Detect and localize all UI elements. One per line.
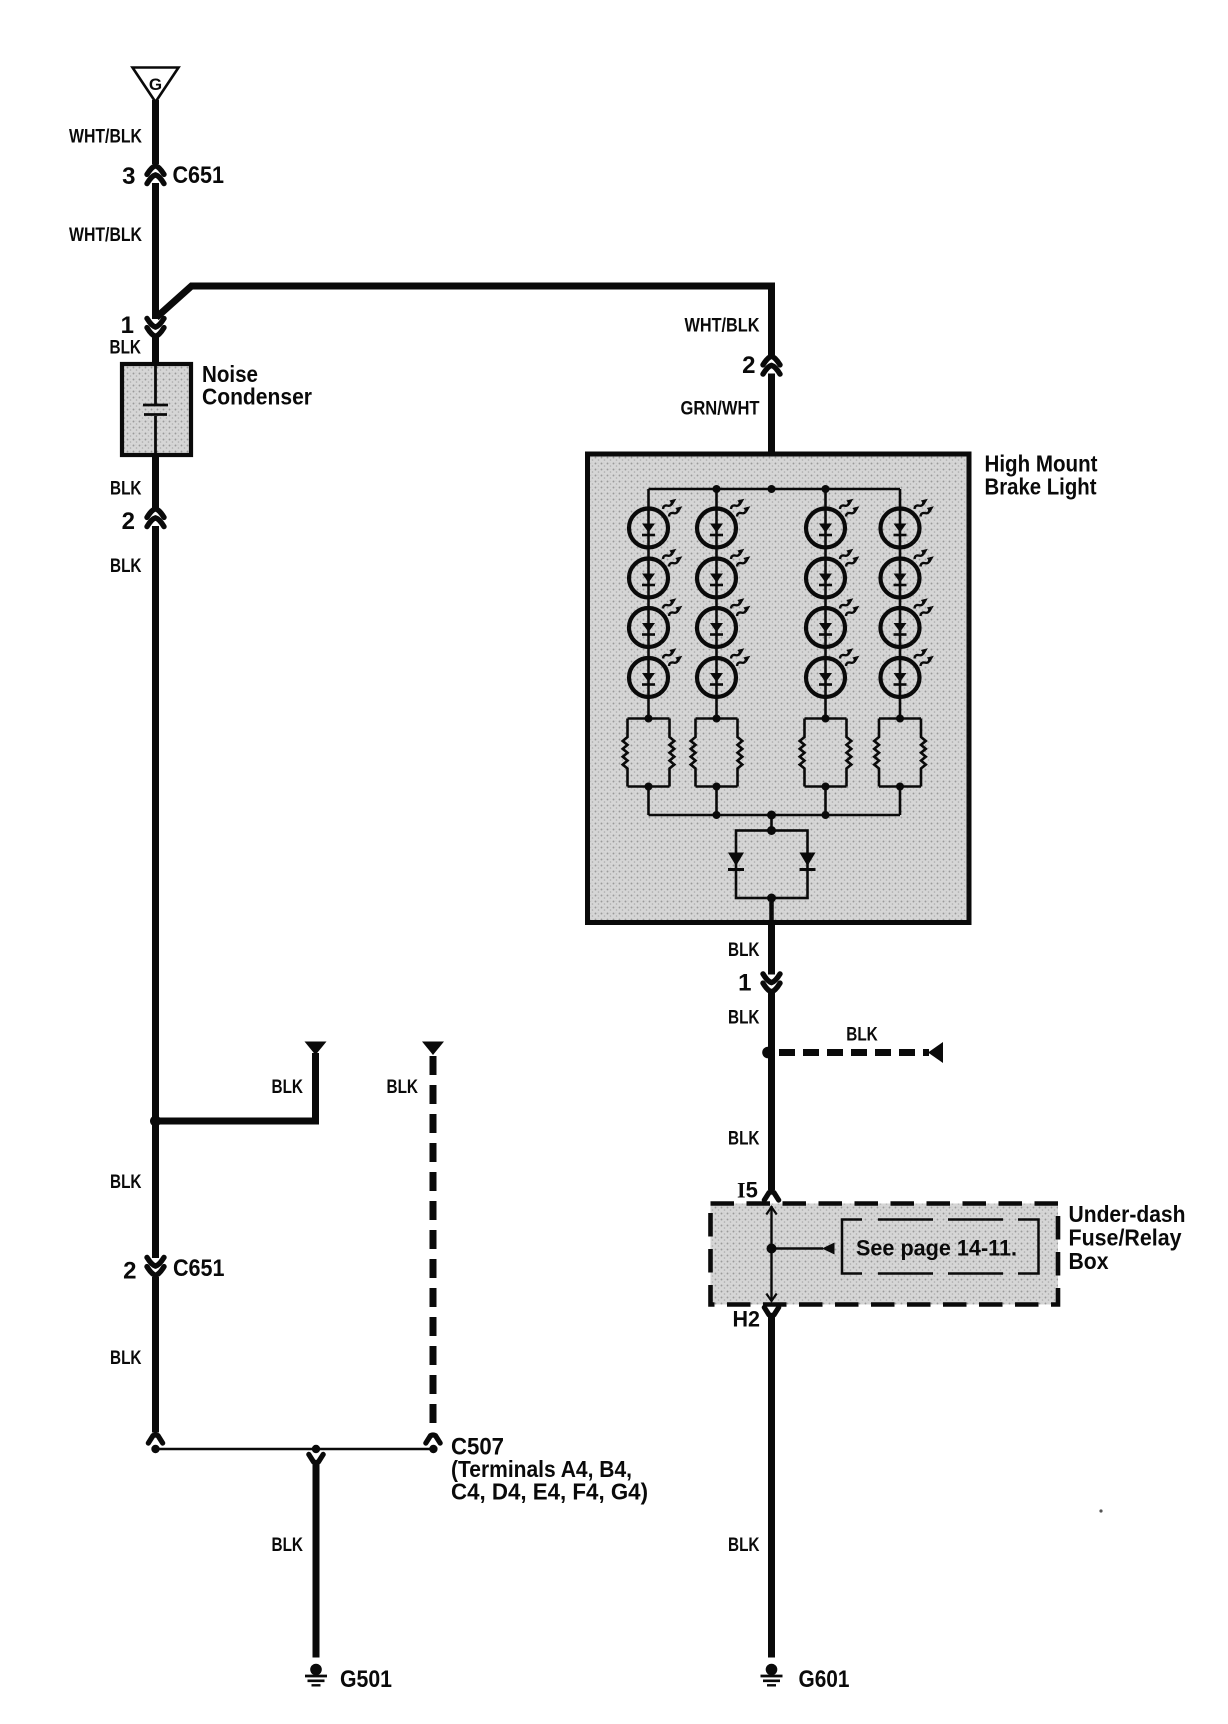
svg-text:1: 1 bbox=[121, 312, 134, 339]
svg-text:GRN/WHT: GRN/WHT bbox=[681, 399, 760, 420]
svg-text:G501: G501 bbox=[340, 1666, 392, 1693]
svg-text:BLK: BLK bbox=[272, 1535, 304, 1556]
svg-text:See page 14-11.: See page 14-11. bbox=[856, 1236, 1017, 1261]
svg-text:BLK: BLK bbox=[846, 1025, 878, 1046]
svg-text:Brake Light: Brake Light bbox=[985, 474, 1097, 500]
svg-text:BLK: BLK bbox=[728, 1008, 760, 1029]
svg-text:Fuse/Relay: Fuse/Relay bbox=[1069, 1225, 1182, 1251]
svg-text:BLK: BLK bbox=[728, 1535, 760, 1556]
svg-text:Box: Box bbox=[1069, 1248, 1109, 1274]
svg-text:BLK: BLK bbox=[110, 1172, 142, 1193]
svg-text:BLK: BLK bbox=[110, 479, 142, 500]
svg-text:BLK: BLK bbox=[387, 1077, 419, 1098]
svg-text:BLK: BLK bbox=[728, 940, 760, 961]
svg-text:Condenser: Condenser bbox=[202, 384, 312, 410]
svg-text:2: 2 bbox=[742, 352, 755, 379]
svg-text:BLK: BLK bbox=[110, 1348, 142, 1369]
svg-text:G: G bbox=[149, 75, 162, 94]
svg-text:C651: C651 bbox=[173, 1255, 225, 1282]
svg-text:BLK: BLK bbox=[728, 1129, 760, 1150]
svg-text:3: 3 bbox=[122, 163, 135, 190]
svg-text:BLK: BLK bbox=[110, 556, 142, 577]
svg-text:C651: C651 bbox=[173, 162, 225, 189]
svg-text:WHT/BLK: WHT/BLK bbox=[69, 225, 142, 246]
svg-text:2: 2 bbox=[123, 1258, 136, 1285]
svg-text:G601: G601 bbox=[799, 1666, 850, 1693]
svg-text:I5: I5 bbox=[737, 1178, 758, 1203]
svg-text:BLK: BLK bbox=[272, 1077, 304, 1098]
svg-text:1: 1 bbox=[738, 970, 751, 997]
svg-text:2: 2 bbox=[122, 508, 135, 535]
svg-text:Under-dash: Under-dash bbox=[1069, 1201, 1186, 1227]
svg-text:WHT/BLK: WHT/BLK bbox=[685, 316, 760, 337]
svg-text:WHT/BLK: WHT/BLK bbox=[69, 127, 142, 148]
svg-text:C4, D4, E4, F4, G4): C4, D4, E4, F4, G4) bbox=[451, 1479, 648, 1505]
svg-text:H2: H2 bbox=[733, 1307, 761, 1332]
svg-text:BLK: BLK bbox=[110, 338, 142, 359]
